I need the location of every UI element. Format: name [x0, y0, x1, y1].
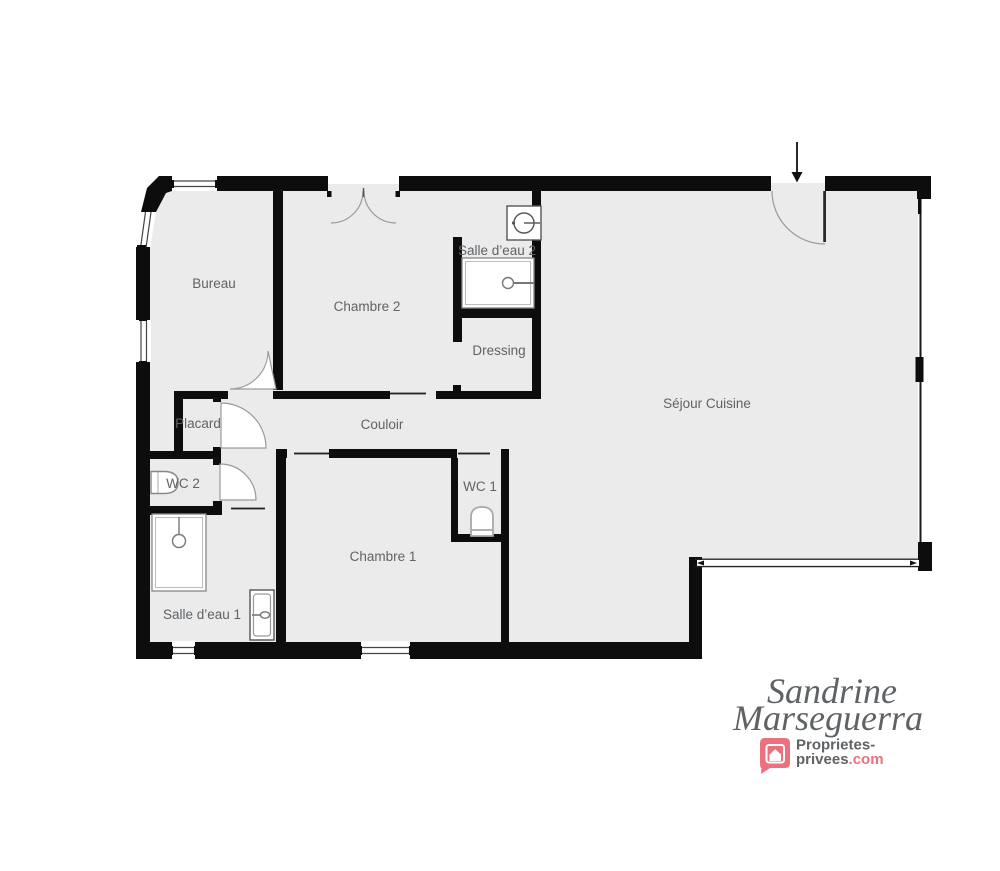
svg-text:Salle d’eau 1: Salle d’eau 1 — [163, 607, 241, 622]
svg-text:Couloir: Couloir — [361, 417, 404, 432]
svg-text:privees.com: privees.com — [796, 751, 884, 768]
svg-text:Bureau: Bureau — [192, 276, 236, 291]
svg-text:Chambre 2: Chambre 2 — [334, 299, 401, 314]
svg-text:Séjour Cuisine: Séjour Cuisine — [663, 396, 751, 411]
svg-text:Salle d’eau 2: Salle d’eau 2 — [458, 243, 536, 258]
svg-text:Marseguerra: Marseguerra — [732, 698, 923, 738]
svg-text:Chambre 1: Chambre 1 — [350, 549, 417, 564]
svg-text:Dressing: Dressing — [472, 343, 525, 358]
svg-text:WC 1: WC 1 — [463, 479, 497, 494]
svg-text:WC 2: WC 2 — [166, 476, 200, 491]
svg-text:Placard: Placard — [175, 416, 221, 431]
